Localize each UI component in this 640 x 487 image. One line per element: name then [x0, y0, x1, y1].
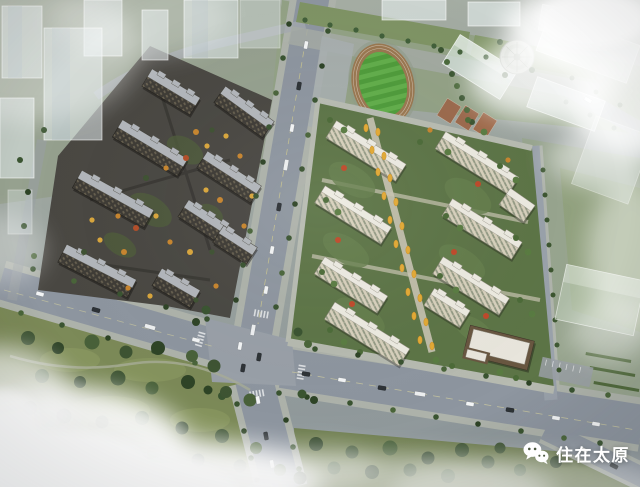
vignette-overlay: [0, 0, 640, 487]
wechat-icon: [523, 442, 549, 465]
watermark-text: 住在太原: [556, 441, 630, 466]
scene-svg: [0, 0, 640, 487]
aerial-render-photo: 住在太原: [0, 0, 640, 487]
watermark: 住在太原: [523, 441, 630, 466]
